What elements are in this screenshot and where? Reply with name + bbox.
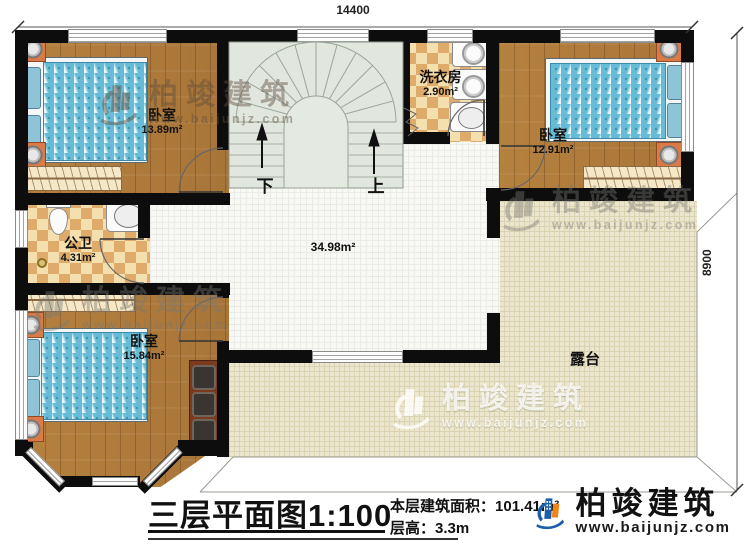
- wall-bedroomTL-bottom: [15, 193, 230, 205]
- brand-url: www.baijunjz.com: [576, 519, 731, 536]
- room-name: 卧室: [116, 108, 208, 124]
- stair-up-label: 上: [363, 172, 389, 197]
- dimension-top-value: 14400: [323, 3, 383, 17]
- sink-basin: [458, 107, 485, 129]
- terrace-label: 露台: [545, 348, 625, 369]
- bay-wall-right-stub: [178, 440, 229, 456]
- wall-laundry-right: [486, 30, 499, 144]
- room-area: 13.89m²: [116, 124, 208, 136]
- room-name: 公卫: [33, 236, 123, 252]
- window: [297, 29, 369, 43]
- window: [15, 310, 28, 440]
- room-label-bedroom-top-right: 卧室 12.91m²: [507, 128, 599, 156]
- room-area: 2.90m²: [398, 86, 483, 98]
- window: [681, 62, 694, 152]
- nightstand: [656, 142, 682, 168]
- floor-area-label: 本层建筑面积：: [390, 498, 495, 515]
- bay-window-bottom: [92, 477, 138, 486]
- window: [427, 29, 473, 43]
- window: [312, 351, 403, 363]
- title-scale: 1:100: [308, 498, 392, 533]
- window: [15, 210, 28, 248]
- brand-logo-icon: [532, 482, 568, 542]
- room-area: 12.91m²: [507, 144, 599, 156]
- wall-bathroom-right: [138, 197, 150, 238]
- brand-logo: 柏竣建筑 www.baijunjz.com: [532, 482, 750, 542]
- sofa: [189, 360, 219, 448]
- wall-hall-right-upper: [487, 201, 500, 238]
- room-label-laundry: 洗衣房 2.90m²: [398, 70, 483, 98]
- room-area: 15.84m²: [98, 350, 190, 362]
- title-underline-thick: [148, 530, 385, 533]
- room-label-bathroom: 公卫 4.31m²: [33, 236, 123, 264]
- room-name: 洗衣房: [398, 70, 483, 86]
- wardrobe-top-left: [18, 166, 122, 191]
- wall-bedroomBL-right-stub: [217, 283, 229, 298]
- window: [68, 29, 167, 43]
- wall-hall-bottom-right: [403, 350, 500, 363]
- room-name: 卧室: [98, 334, 190, 350]
- title-text: 三层平面图: [148, 498, 308, 533]
- dimension-right-value: 8900: [700, 232, 718, 294]
- stair-down-label: 下: [252, 172, 278, 197]
- wall-bedroomTL-right: [217, 30, 229, 150]
- room-area: 4.31m²: [33, 252, 123, 264]
- floor-height-value: 3.3m: [435, 520, 469, 537]
- wall-bathroom-bottom: [15, 283, 230, 295]
- laundry-sink: [450, 102, 490, 132]
- room-label-bedroom-bottom-left: 卧室 15.84m²: [98, 334, 190, 362]
- lamp-icon: [660, 146, 679, 165]
- room-name: 卧室: [507, 128, 599, 144]
- wall-laundry-bottom: [398, 132, 450, 144]
- brand-name: 柏竣建筑: [576, 486, 720, 521]
- room-label-bedroom-top-left: 卧室 13.89m²: [116, 108, 208, 136]
- hall-area-label: 34.98m²: [293, 240, 373, 254]
- wall-bedroomTR-bottom: [486, 188, 694, 201]
- sofa-cushion: [192, 392, 216, 417]
- wall-hall-bottom-left: [228, 350, 312, 363]
- floor-height-label: 层高：: [390, 520, 435, 537]
- drawing-title: 三层平面图1:100: [148, 490, 392, 535]
- washer-door: [462, 42, 485, 65]
- window: [560, 29, 655, 43]
- sofa-cushion: [192, 365, 216, 390]
- floorplan-page: 14400 8900 卧室 13.89m² 公卫 4.31m² 洗衣房 2.90…: [0, 0, 750, 552]
